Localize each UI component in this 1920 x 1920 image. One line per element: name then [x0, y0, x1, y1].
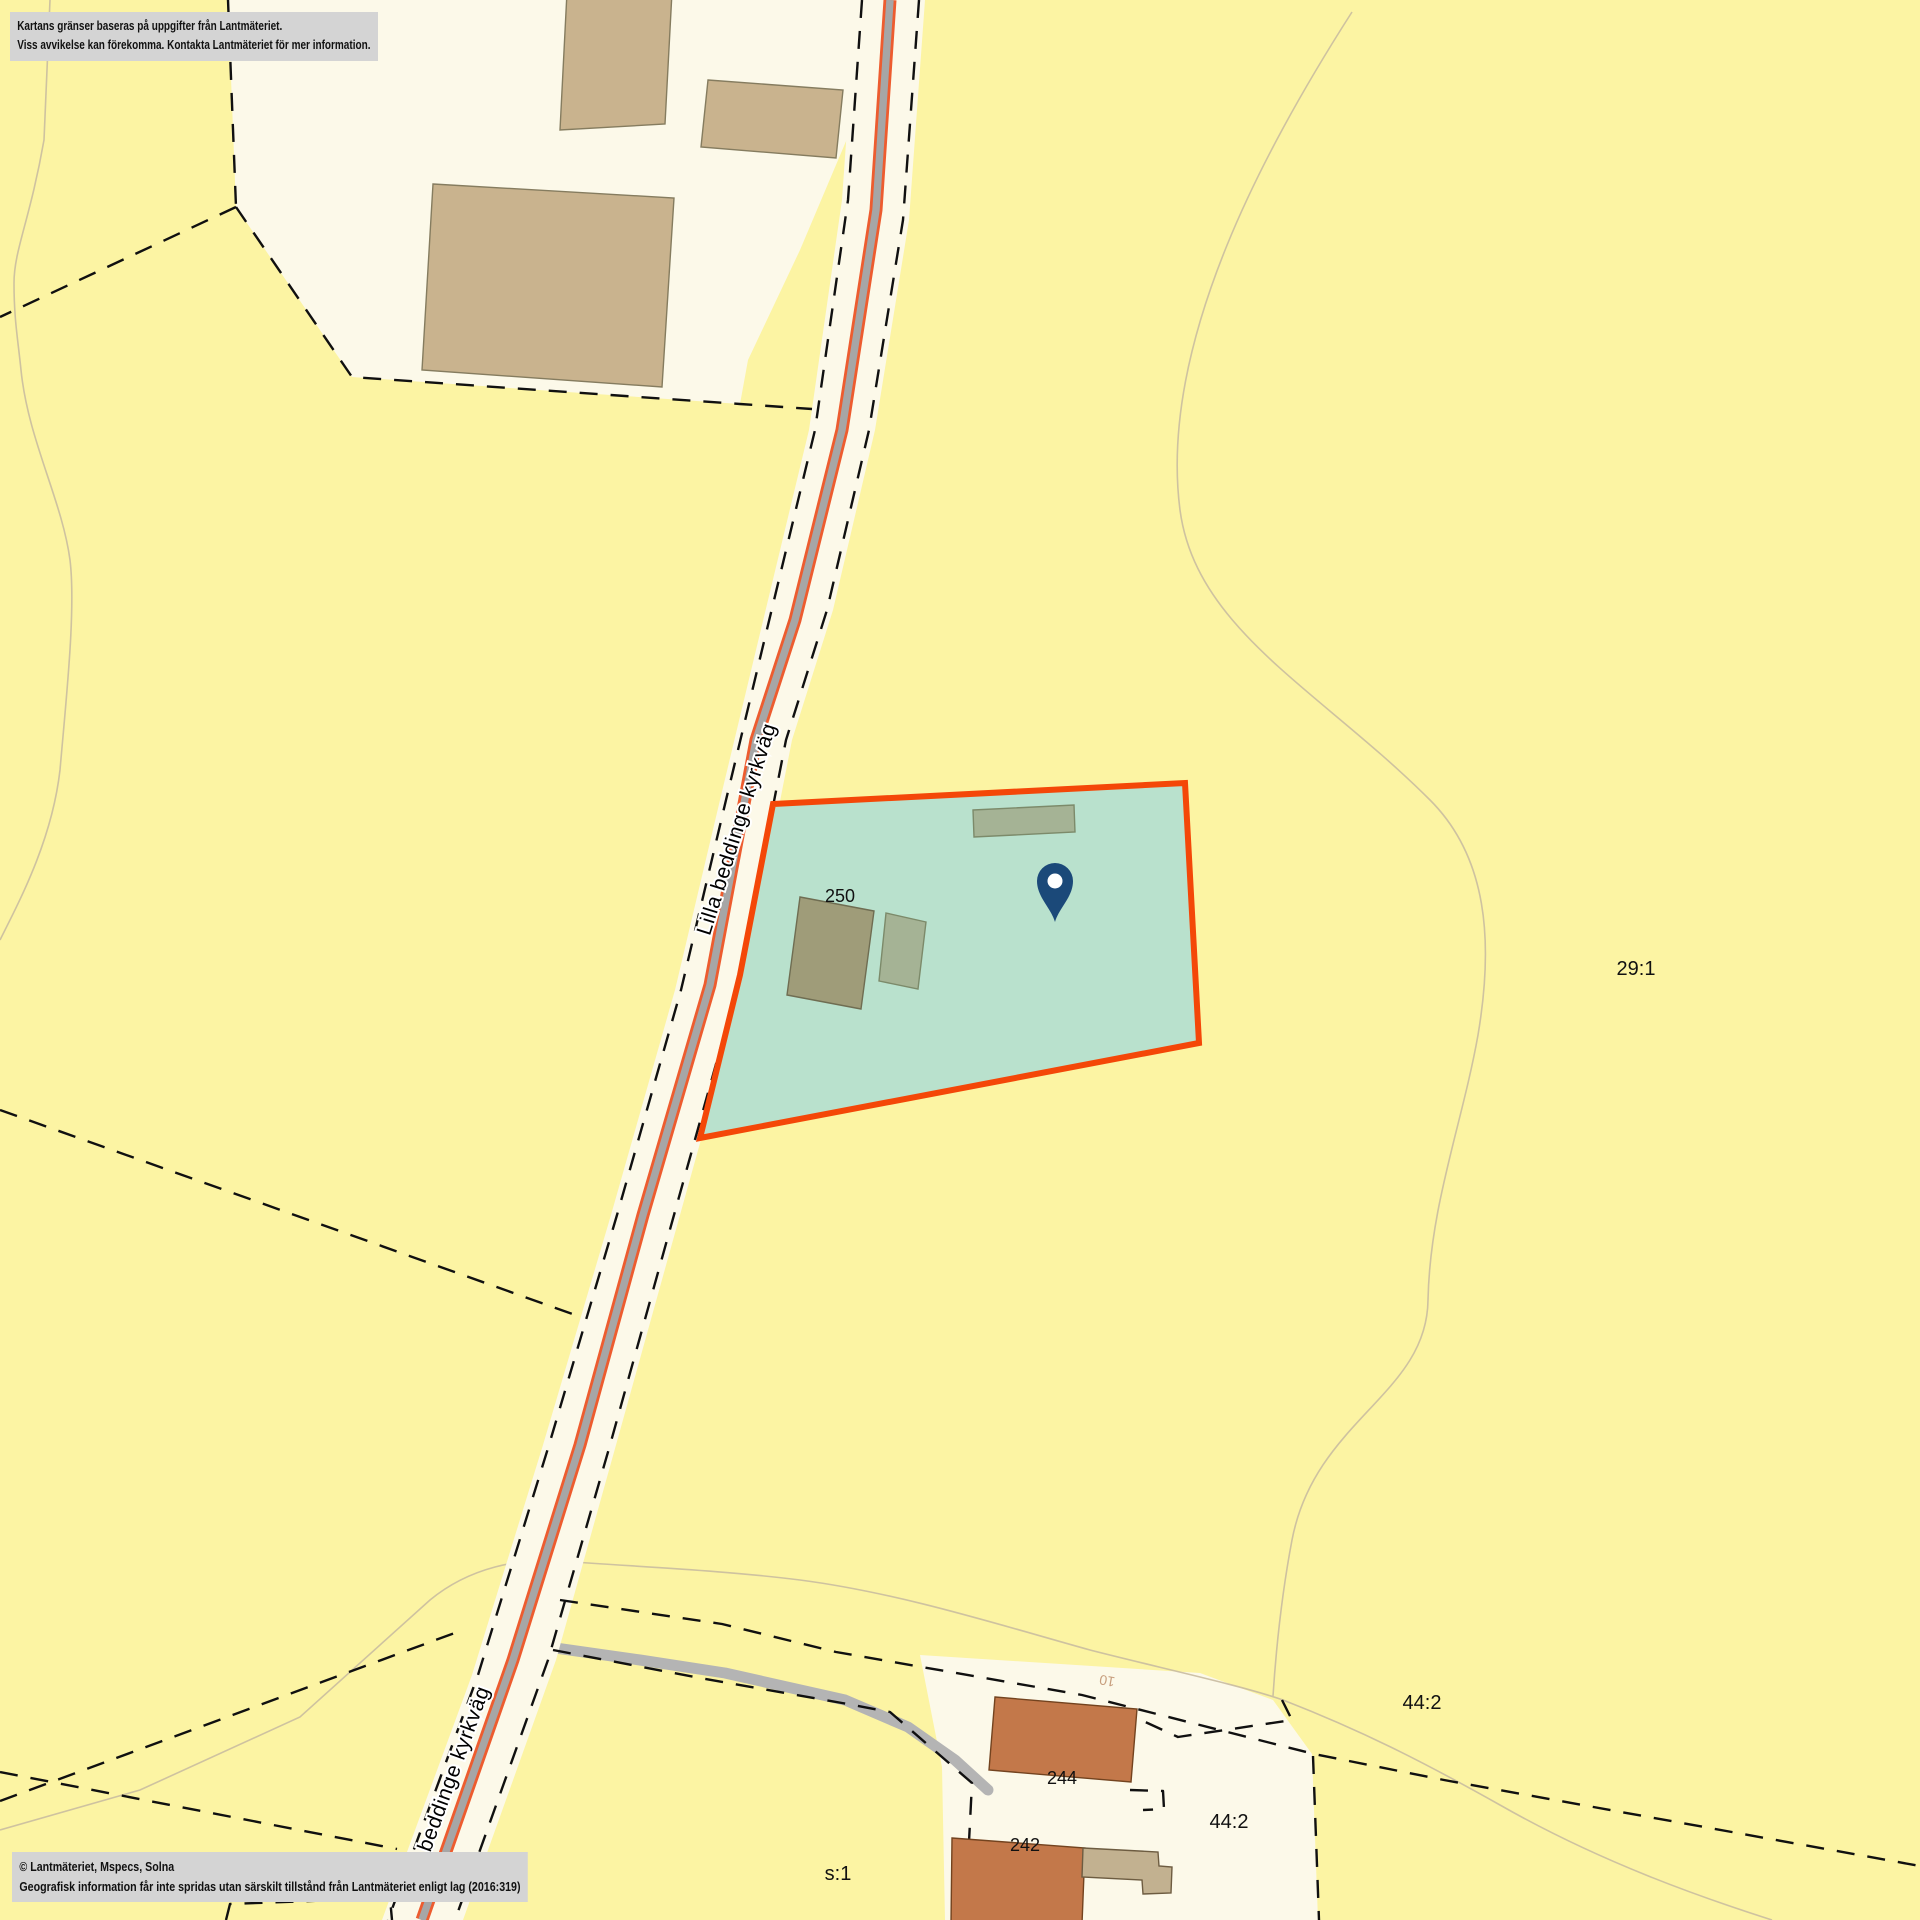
copyright-line-1: © Lantmäteriet, Mspecs, Solna	[19, 1857, 520, 1877]
building-250-main	[787, 897, 874, 1009]
map-disclaimer-box: Kartans gränser baseras på uppgifter frå…	[10, 12, 378, 61]
building-250-small	[879, 913, 926, 989]
cadastral-map-page: { "map": { "labels": { "road_name": "Lil…	[0, 0, 1920, 1920]
label-parcel-s-1: s:1	[825, 1863, 852, 1885]
map-canvas[interactable]: 29:1 44:2 44:2 s:1 250 244 242 10 Lilla …	[0, 0, 1920, 1920]
label-parcel-29-1: 29:1	[1617, 958, 1656, 980]
label-road-10: 10	[1098, 1672, 1116, 1690]
building-topleft-b	[701, 80, 843, 158]
copyright-line-2: Geografisk information får inte spridas …	[19, 1877, 520, 1897]
label-parcel-44-2-upper: 44:2	[1403, 1692, 1442, 1714]
building-topleft-a	[560, 0, 672, 130]
label-address-242: 242	[1010, 1835, 1040, 1855]
disclaimer-line-1: Kartans gränser baseras på uppgifter frå…	[17, 17, 370, 36]
building-250-long	[973, 805, 1075, 837]
label-address-250: 250	[825, 886, 855, 906]
label-address-244: 244	[1047, 1768, 1077, 1788]
disclaimer-line-2: Viss avvikelse kan förekomma. Kontakta L…	[17, 36, 370, 55]
building-topleft-c	[422, 184, 674, 387]
label-parcel-44-2-lower: 44:2	[1210, 1811, 1249, 1833]
map-copyright-box: © Lantmäteriet, Mspecs, Solna Geografisk…	[12, 1852, 528, 1902]
